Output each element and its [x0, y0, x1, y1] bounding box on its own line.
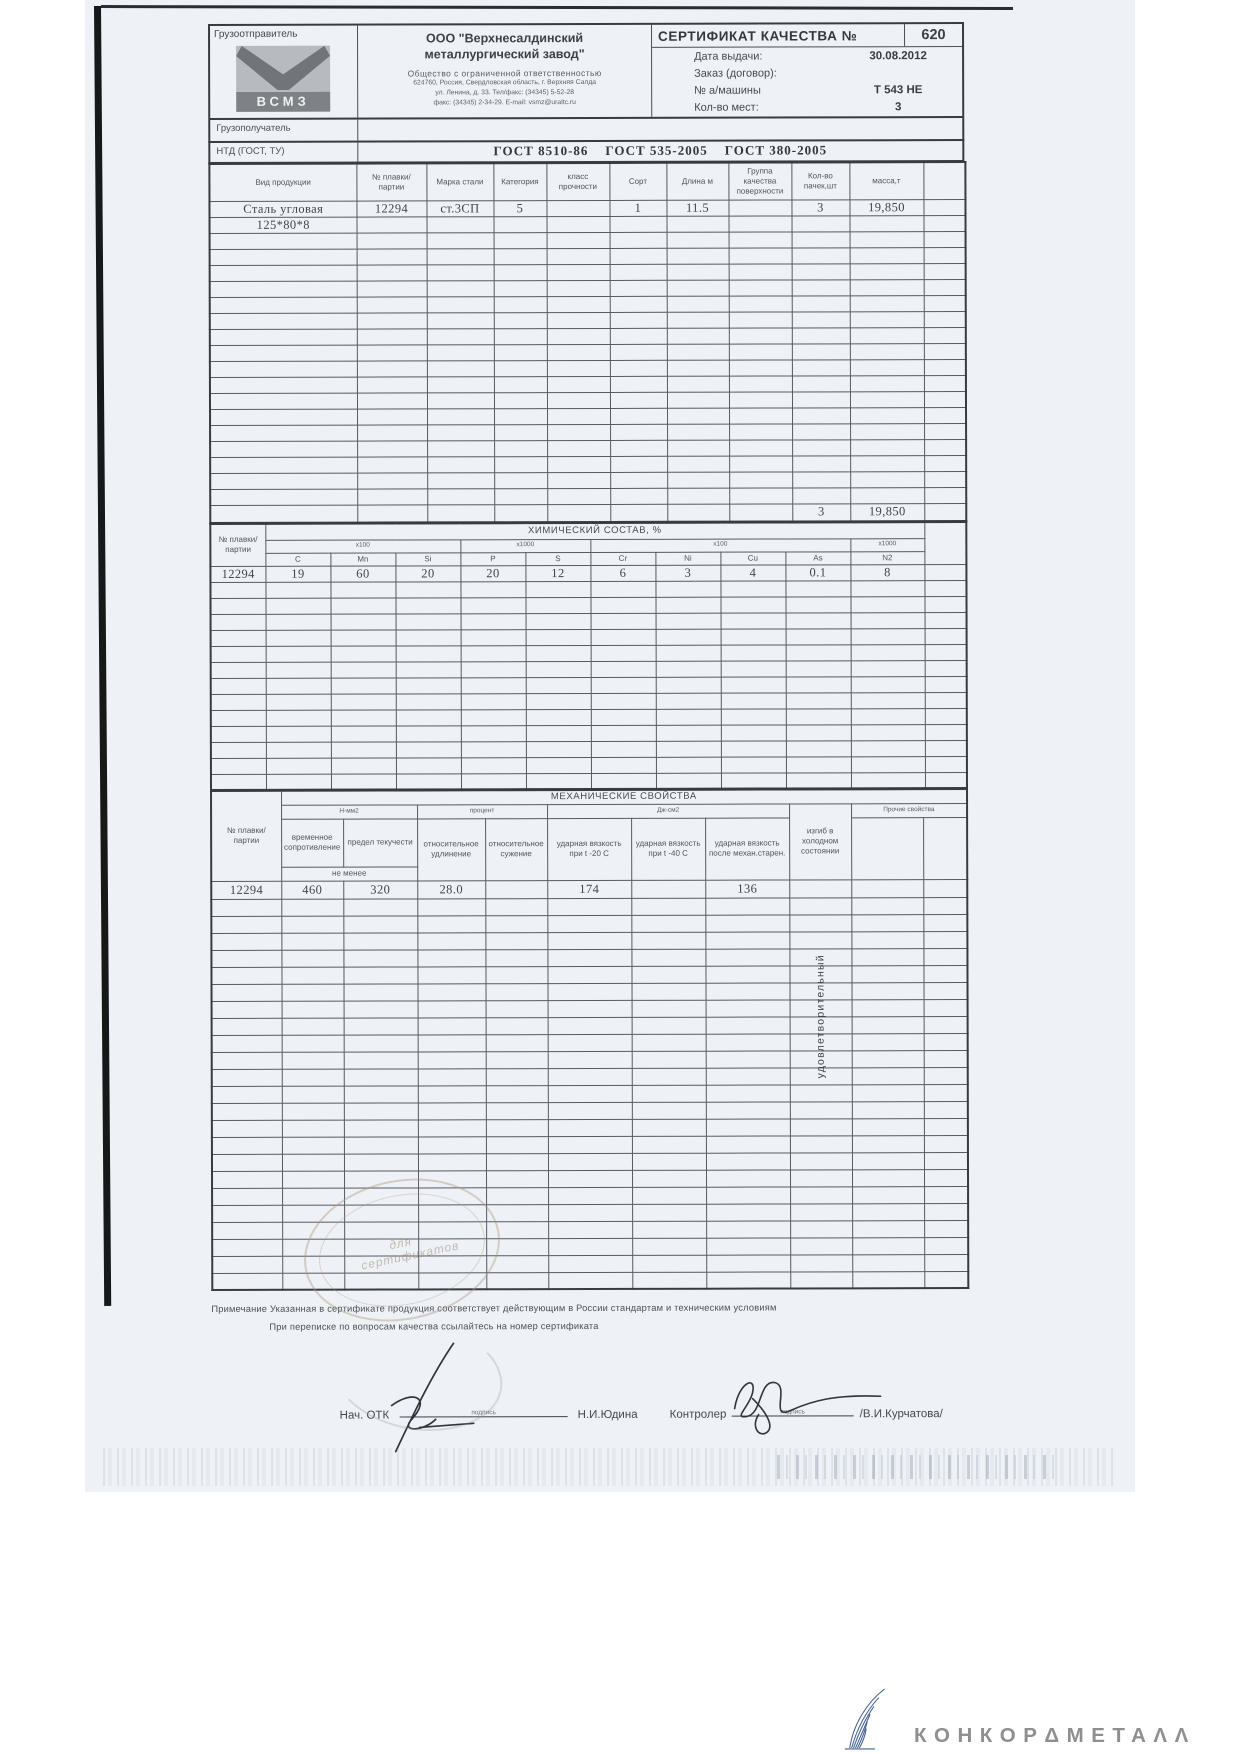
empty-row — [211, 756, 967, 774]
consignee-row: Грузополучатель — [208, 118, 964, 143]
company-name-line1: ООО "Верхнесалдинский — [358, 30, 651, 47]
h-elem-C: C — [265, 553, 330, 566]
vsmz-v-icon — [236, 46, 330, 92]
product-row-1: Сталь угловая 12294 ст.3СП 5 1 11.5 3 19… — [209, 199, 965, 217]
h-packs: Кол-во пачек,шт — [791, 162, 849, 199]
empty-row — [210, 487, 966, 505]
shipper-cell: Грузоотправитель ВСМЗ — [210, 26, 358, 118]
mech-contraction — [485, 880, 547, 898]
h-elem-P: P — [460, 552, 525, 565]
h-mass: масса,т — [849, 162, 923, 199]
h-other: Прочие свойства — [851, 803, 967, 817]
empty-row — [211, 660, 967, 678]
chem-title-row: № плавки/ партии ХИМИЧЕСКИЙ СОСТАВ, % — [210, 522, 966, 540]
empty-row — [211, 596, 967, 614]
places-label: Кол-во мест: — [652, 102, 834, 114]
empty-row — [211, 692, 967, 710]
c-mass: 19,850 — [849, 199, 923, 215]
h-extra — [923, 162, 965, 199]
vsmz-logo: ВСМЗ — [236, 46, 330, 112]
h-heat: № плавки/ партии — [356, 163, 426, 200]
c-sort: 1 — [609, 200, 666, 216]
h-product: Вид продукции — [209, 164, 356, 201]
issue-date-row: Дата выдачи: 30.08.2012 — [652, 47, 962, 65]
empty-row — [210, 471, 966, 489]
empty-row — [211, 676, 967, 694]
h-elem-N2: N2 — [850, 551, 924, 564]
group-nmm2: Н-мм2 — [281, 804, 417, 818]
vsmz-logo-text: ВСМЗ — [236, 92, 330, 112]
empty-row — [211, 740, 967, 758]
chem-N2: 8 — [850, 564, 924, 580]
c-size: 125*80*8 — [210, 217, 357, 233]
h-elem-Si: Si — [395, 552, 460, 565]
certificate-info: СЕРТИФИКАТ КАЧЕСТВА № 620 Дата выдачи: 3… — [652, 24, 962, 117]
c-category: 5 — [493, 200, 546, 216]
empty-row — [212, 982, 968, 1001]
concordmetal-text: КОНКОРΔМЕТАΛΛ — [914, 1724, 1196, 1752]
chem-empty-rows — [210, 580, 967, 790]
empty-row — [210, 247, 966, 265]
h-elem-S: S — [525, 552, 590, 565]
concordmetal-logo: КОНКОРΔМЕТАΛΛ — [842, 1684, 1196, 1752]
empty-row — [210, 311, 966, 329]
certificate: Грузоотправитель ВСМЗ ООО "Верхнесалдинс… — [208, 22, 967, 1332]
chem-title: ХИМИЧЕСКИЙ СОСТАВ, % — [265, 522, 924, 540]
empty-row — [212, 1152, 968, 1171]
chem-Mn: 60 — [330, 566, 395, 582]
empty-row — [212, 1050, 968, 1069]
chem-heat: 12294 — [210, 566, 265, 582]
c-grade: ст.3СП — [426, 200, 493, 216]
product-total-row: 3 19,850 — [210, 503, 966, 523]
h-bend: изгиб в холодном состоянии — [789, 803, 851, 879]
ntd-standards: ГОСТ 8510-86 ГОСТ 535-2005 ГОСТ 380-2005 — [358, 141, 962, 162]
chem-Ni: 3 — [655, 565, 720, 581]
mech-impact-aged: 136 — [705, 879, 789, 897]
chem-S: 12 — [525, 565, 590, 581]
consignee-label: Грузополучатель — [210, 120, 358, 141]
empty-row — [211, 708, 967, 726]
empty-row — [210, 580, 966, 598]
c-strength-class — [546, 200, 609, 216]
empty-row — [212, 1118, 968, 1137]
empty-row — [212, 1067, 968, 1086]
otk-name: Н.И.Юдина — [578, 1409, 638, 1421]
chem-Si: 20 — [395, 565, 460, 581]
chem-data-row: 12294 19 60 20 20 12 6 3 4 0.1 8 — [210, 564, 966, 582]
empty-row — [210, 407, 966, 425]
chem-heat-header: № плавки/ партии — [210, 524, 265, 566]
empty-row — [210, 343, 966, 361]
h-elem-Mn: Mn — [330, 553, 395, 566]
company-name-line2: металлургический завод" — [358, 46, 651, 63]
certificate-title-row: СЕРТИФИКАТ КАЧЕСТВА № 620 — [652, 24, 962, 48]
issue-date-label: Дата выдачи: — [652, 50, 834, 62]
empty-row — [211, 628, 967, 646]
empty-row — [211, 965, 967, 984]
mech-impact-minus20: 174 — [547, 880, 631, 898]
empty-row — [211, 644, 967, 662]
order-row: Заказ (договор): — [652, 64, 962, 82]
certificate-title: СЕРТИФИКАТ КАЧЕСТВА № — [652, 24, 904, 47]
h-tensile: временное сопротивление — [281, 819, 343, 867]
mult-x1000-b: x1000 — [850, 538, 924, 551]
chem-Cu: 4 — [720, 564, 785, 580]
mech-subheader-row: временное сопротивление предел текучести… — [211, 817, 967, 867]
mech-data-row: 12294 460 320 28.0 174 136 — [211, 879, 967, 899]
empty-row — [212, 1016, 968, 1035]
empty-row — [210, 231, 966, 249]
product-empty-rows — [210, 231, 967, 505]
empty-row — [210, 439, 966, 457]
empty-row — [210, 263, 966, 281]
empty-row — [211, 897, 967, 916]
sail-icon — [842, 1684, 900, 1752]
chem-As: 0.1 — [785, 564, 850, 580]
h-strength-class: класс прочности — [546, 163, 609, 200]
h-category: Категория — [493, 163, 546, 200]
places-row: Кол-во мест: 3 — [652, 99, 962, 117]
mech-impact-minus40 — [631, 880, 705, 898]
mech-heat: 12294 — [211, 881, 281, 899]
empty-row — [212, 1033, 968, 1052]
mult-x1000-a: x1000 — [460, 539, 590, 552]
chemical-table: № плавки/ партии ХИМИЧЕСКИЙ СОСТАВ, % x1… — [209, 521, 968, 791]
total-packs: 3 — [792, 503, 850, 521]
mech-elongation: 28.0 — [417, 880, 485, 898]
empty-row — [212, 1135, 968, 1154]
empty-row — [211, 914, 967, 933]
empty-row — [211, 931, 967, 950]
empty-row — [210, 455, 966, 473]
empty-row — [211, 724, 967, 742]
controller-name: /В.И.Курчатова/ — [860, 1408, 943, 1420]
scan-noise-strip — [103, 1448, 1115, 1486]
h-contraction: относительное сужение — [485, 818, 547, 880]
empty-row — [210, 391, 966, 409]
h-elem-Cu: Cu — [720, 551, 785, 564]
controller-signature-icon — [717, 1368, 887, 1438]
h-length: Длина м — [666, 163, 728, 200]
certificate-number: 620 — [904, 24, 962, 46]
truck-value: Т 543 НЕ — [834, 84, 962, 96]
group-percent: процент — [417, 804, 547, 818]
ntd-label: НТД (ГОСТ, ТУ) — [210, 143, 358, 162]
mech-yield: 320 — [343, 880, 417, 898]
mech-tensile: 460 — [281, 881, 343, 899]
vsmz-logo-mark — [236, 46, 330, 92]
h-surface-group: Группа качества поверхности — [728, 162, 791, 199]
company-address-line3: факс: (34345) 2-34-29. E-mail: vsmz@ural… — [358, 98, 651, 109]
c-product: Сталь угловая — [209, 201, 356, 217]
consignee-value — [358, 118, 962, 141]
empty-row — [211, 772, 967, 790]
empty-row — [212, 999, 968, 1018]
c-surface-group — [728, 199, 791, 215]
h-grade: Марка стали — [426, 163, 493, 200]
order-label: Заказ (договор): — [652, 67, 834, 79]
empty-row — [212, 1084, 968, 1103]
h-elem-Ni: Ni — [655, 552, 720, 565]
empty-row — [210, 279, 966, 297]
product-header-row: Вид продукции № плавки/ партии Марка ста… — [209, 162, 965, 201]
chem-P: 20 — [460, 565, 525, 581]
c-length: 11.5 — [666, 200, 728, 216]
empty-row — [212, 1169, 968, 1188]
empty-row — [211, 948, 967, 967]
truck-row: № а/машины Т 543 НЕ — [652, 82, 962, 100]
header-block: Грузоотправитель ВСМЗ ООО "Верхнесалдинс… — [208, 22, 964, 120]
empty-row — [210, 375, 966, 393]
bend-result-vertical: удовлетворительный — [788, 920, 853, 1112]
empty-row — [210, 359, 966, 377]
empty-row — [210, 423, 966, 441]
group-jcm2: Дж-см2 — [547, 803, 789, 818]
h-impact-minus40: ударная вязкость при t -40 С — [631, 818, 705, 880]
h-impact-minus20: ударная вязкость при t -20 С — [547, 818, 631, 880]
mult-x100-a: x100 — [265, 539, 460, 553]
issue-date-value: 30.08.2012 — [834, 50, 962, 62]
places-value: 3 — [834, 101, 962, 113]
empty-row — [210, 295, 966, 313]
product-row-2: 125*80*8 — [210, 215, 966, 233]
empty-row — [211, 612, 967, 630]
company-cell: ООО "Верхнесалдинский металлургический з… — [358, 25, 652, 118]
product-table: Вид продукции № плавки/ партии Марка ста… — [208, 161, 967, 524]
h-impact-aged: ударная вязкость после механ.старен. — [705, 817, 789, 879]
c-packs: 3 — [791, 199, 849, 215]
chem-C: 19 — [265, 566, 330, 582]
chem-Cr: 6 — [590, 565, 655, 581]
h-yield: предел текучести — [343, 818, 417, 866]
truck-label: № а/машины — [652, 84, 834, 96]
h-elongation: относительное удлинение — [417, 818, 485, 880]
empty-row — [212, 1101, 968, 1120]
mult-x100-b: x100 — [590, 538, 850, 552]
total-mass: 19,850 — [850, 503, 924, 521]
scanned-page: Грузоотправитель ВСМЗ ООО "Верхнесалдинс… — [85, 0, 1135, 1492]
not-less-label: не менее — [281, 866, 417, 880]
h-sort: Сорт — [609, 163, 666, 200]
c-heat: 12294 — [356, 200, 426, 216]
h-elem-As: As — [785, 551, 850, 564]
shipper-label: Грузоотправитель — [214, 29, 353, 40]
empty-row — [210, 327, 966, 345]
h-elem-Cr: Cr — [590, 552, 655, 565]
mech-heat-header: № плавки/ партии — [211, 791, 281, 881]
